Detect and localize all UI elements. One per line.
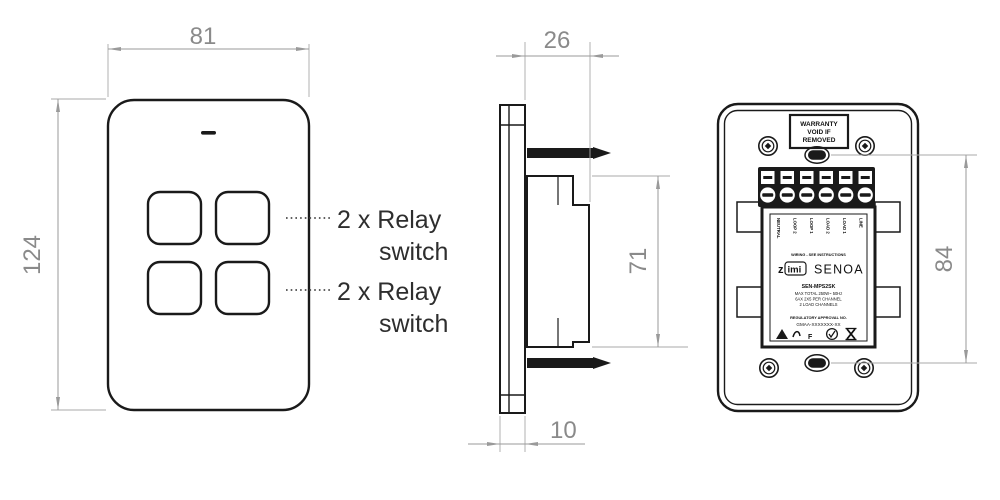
rating-line-1: MAX TOTAL 250W~ 50Hz	[795, 291, 843, 296]
screw-icon	[760, 359, 778, 377]
switch-dimension-drawing: 81 124 2 x Relay switch 2 x Relay switch	[0, 0, 1000, 500]
technical-drawing-page: 81 124 2 x Relay switch 2 x Relay switch	[0, 0, 1000, 500]
front-view	[108, 100, 309, 410]
model-number: SEN-MPS2SK	[802, 284, 836, 290]
mounting-screw-bottom	[527, 357, 611, 369]
warranty-line2: VOID IF	[807, 129, 831, 136]
relay-annotation-1-line2: switch	[379, 238, 448, 266]
brand-imi: imi	[788, 265, 802, 276]
side-view	[500, 105, 611, 413]
front-faceplate-outline	[108, 100, 309, 410]
button-top-left	[148, 192, 201, 244]
product-label: NEUTRAL LOOP 2 LOOP 1 LOAD 2 LOAD 1 LINE…	[762, 207, 875, 347]
screw-icon	[759, 137, 777, 155]
warranty-line3: REMOVED	[803, 137, 836, 144]
tab-right-bottom	[875, 287, 900, 317]
dim-label-10: 10	[550, 417, 577, 444]
mounting-slot-top	[805, 147, 829, 163]
terminal-label: LOOP 1	[809, 218, 814, 234]
tab-right-top	[875, 202, 900, 232]
relay-annotation-2-line2: switch	[379, 310, 448, 338]
button-bottom-left	[148, 262, 201, 314]
f-mark-icon: F	[808, 334, 813, 341]
screw-icon	[856, 137, 874, 155]
rating-line-2: 6AX 2X5 PER CHANNEL	[795, 297, 842, 302]
rating-line-3: 2 LOAD CHANNELS	[800, 302, 838, 307]
warning-triangle-icon	[776, 329, 788, 339]
dimension-front-width: 81	[108, 23, 309, 97]
dimension-front-height: 124	[19, 99, 106, 410]
dim-label-81: 81	[190, 23, 217, 50]
terminal-block	[758, 167, 875, 207]
terminal-label: LOAD 1	[842, 218, 847, 234]
terminal-label: LINE	[859, 218, 864, 228]
relay-annotation-1-line1: 2 x Relay	[337, 206, 442, 234]
dim-label-71: 71	[625, 248, 652, 275]
dim-label-84: 84	[931, 246, 958, 273]
relay-annotation-2-line1: 2 x Relay	[337, 278, 442, 306]
hourglass-icon	[846, 329, 857, 340]
rcm-mark-icon	[827, 329, 838, 340]
terminal-label: NEUTRAL	[776, 218, 781, 239]
approval-title: REGULATORY APPROVAL NO.	[790, 315, 847, 320]
hook-icon	[793, 332, 800, 337]
button-bottom-right	[216, 262, 269, 314]
terminal-label: LOAD 2	[826, 218, 831, 234]
mounting-screw-top	[527, 147, 611, 159]
dimension-side-body-height: 71	[592, 176, 688, 347]
dim-label-26: 26	[544, 27, 571, 54]
tab-left-bottom	[737, 287, 762, 317]
dim-label-124: 124	[19, 235, 46, 275]
warranty-label: WARRANTY VOID IF REMOVED	[790, 115, 848, 148]
warranty-line1: WARRANTY	[800, 121, 838, 128]
dimension-side-faceplate-depth: 10	[468, 416, 585, 452]
approval-code: GMAA-XXXXXXX-XX	[796, 322, 840, 327]
terminal-name-labels: NEUTRAL LOOP 2 LOOP 1 LOAD 2 LOAD 1 LINE	[776, 218, 864, 239]
wiring-note: WIRING - SEE INSTRUCTIONS	[791, 253, 846, 257]
terminal-label: LOOP 2	[793, 218, 798, 234]
screw-icon	[855, 359, 873, 377]
button-top-right	[216, 192, 269, 244]
relay-annotations: 2 x Relay switch 2 x Relay switch	[286, 206, 448, 338]
product-name: SENOA	[814, 263, 864, 277]
zimi-logo: z imi	[778, 262, 806, 276]
certification-icons: F	[776, 329, 857, 342]
tab-left-top	[737, 202, 762, 232]
mounting-slot-bottom	[805, 355, 829, 371]
side-faceplate-outline	[500, 105, 525, 413]
led-indicator	[201, 131, 216, 135]
brand-z: z	[778, 264, 784, 276]
back-view: WARRANTY VOID IF REMOVED	[718, 104, 918, 411]
